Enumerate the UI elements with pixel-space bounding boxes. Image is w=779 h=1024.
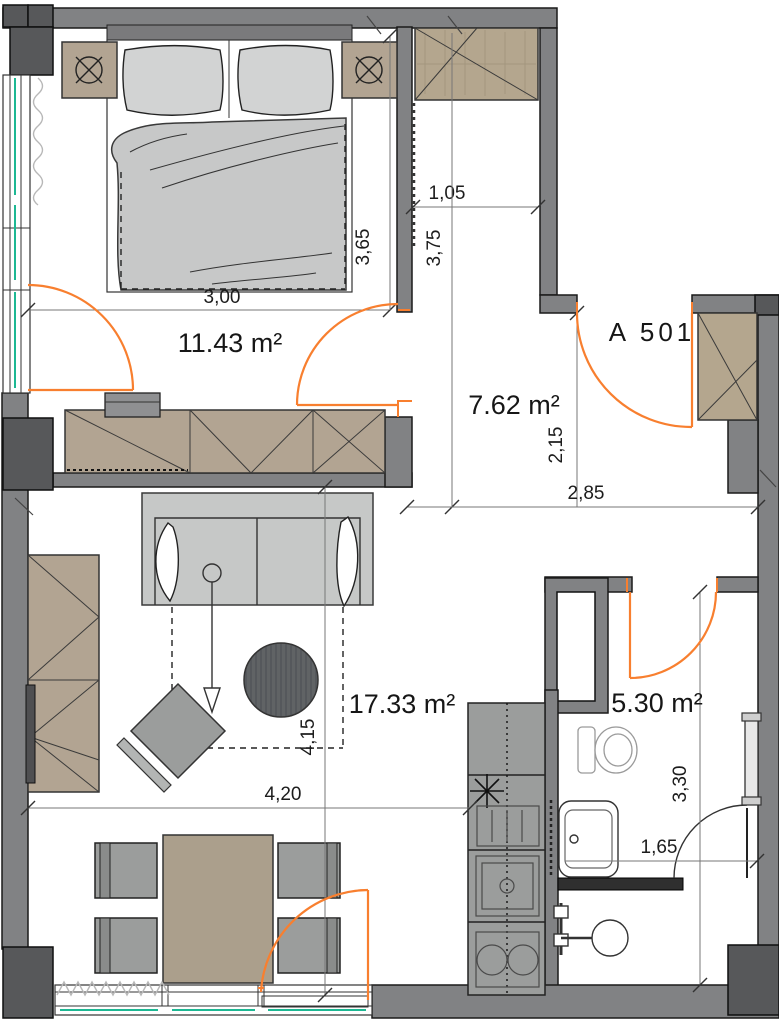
apartment-label: A 501: [609, 317, 696, 347]
svg-text:1,05: 1,05: [429, 183, 466, 204]
shower-head-icon: [592, 920, 628, 956]
corner-block: [728, 945, 779, 1015]
tv: [26, 685, 35, 783]
dining-chair: [278, 843, 340, 898]
hall-area-label: 7.62 m²: [468, 390, 560, 420]
washbasin: [559, 801, 618, 877]
dresser: [105, 393, 160, 417]
corner-block: [3, 947, 53, 1018]
pillow: [123, 46, 223, 116]
dimension-niche-width: 1,05: [406, 183, 545, 214]
corner-block: [3, 418, 53, 490]
shaft-void: [557, 592, 595, 701]
nightstand-left: [62, 42, 117, 98]
corner-block: [28, 5, 53, 27]
dimension-hall-width: 2,85: [400, 483, 765, 514]
svg-text:3,75: 3,75: [424, 230, 445, 267]
kitchen-counter: [468, 703, 545, 995]
door-bathroom: [627, 578, 717, 678]
coffee-table: [244, 643, 318, 717]
corner-block: [3, 5, 28, 27]
shower-door: [674, 805, 747, 878]
wall-bedroom-living: [53, 473, 412, 487]
wall-bottom: [372, 985, 779, 1018]
dining-chair: [95, 918, 157, 973]
bathroom-area-label: 5.30 m²: [611, 688, 703, 718]
wall-door-column: [385, 417, 412, 487]
pillow: [238, 46, 333, 116]
dining-table: [163, 835, 273, 983]
entry-cabinet: [698, 313, 757, 420]
dining-chair: [95, 843, 157, 898]
headboard: [107, 25, 352, 40]
wall-bath-top-right: [717, 577, 758, 592]
wall-hall-stub: [540, 295, 577, 313]
curtain: [34, 78, 43, 205]
bed: [107, 25, 352, 292]
floor-plan: 3,00 3,65 1,05 3,75 2,15 2,85 4,15 4,20: [0, 0, 779, 1024]
corner-block: [10, 27, 53, 75]
svg-text:3,00: 3,00: [204, 287, 241, 308]
wall-right-pier: [728, 420, 758, 493]
corner-block: [755, 295, 779, 315]
door-bedroom: [297, 304, 412, 417]
window-left: [3, 75, 30, 393]
dimension-hall-depth: 3,75: [424, 33, 459, 514]
nightstand-right: [342, 42, 397, 98]
bedroom-wardrobe: [65, 410, 385, 473]
svg-text:3,65: 3,65: [353, 229, 374, 266]
hall-wardrobe: [415, 28, 538, 100]
living-wardrobe: [28, 555, 99, 792]
svg-text:1,65: 1,65: [641, 837, 678, 858]
pull-handle: [203, 564, 221, 582]
bedroom-area-label: 11.43 m²: [178, 328, 283, 358]
towel-radiator: [742, 713, 761, 805]
living-area-label: 17.33 m²: [349, 689, 456, 719]
svg-text:3,30: 3,30: [670, 766, 691, 803]
toilet: [578, 727, 637, 773]
floor-plan-drawing: 3,00 3,65 1,05 3,75 2,15 2,85 4,15 4,20: [0, 0, 779, 1024]
dimension-bath-depth: 3,30: [670, 585, 707, 992]
wall-right: [758, 313, 779, 1013]
svg-text:2,15: 2,15: [546, 427, 567, 464]
wall-hall-right: [540, 28, 557, 295]
shower-partition: [558, 878, 683, 890]
door-bedroom-balcony: [28, 285, 133, 390]
pullout-arrow-icon: [204, 688, 220, 712]
shower: [554, 903, 628, 956]
svg-text:4,20: 4,20: [265, 784, 302, 805]
wall-bedroom-hall: [397, 27, 412, 312]
svg-text:4,15: 4,15: [298, 719, 319, 756]
svg-text:2,85: 2,85: [568, 483, 605, 504]
